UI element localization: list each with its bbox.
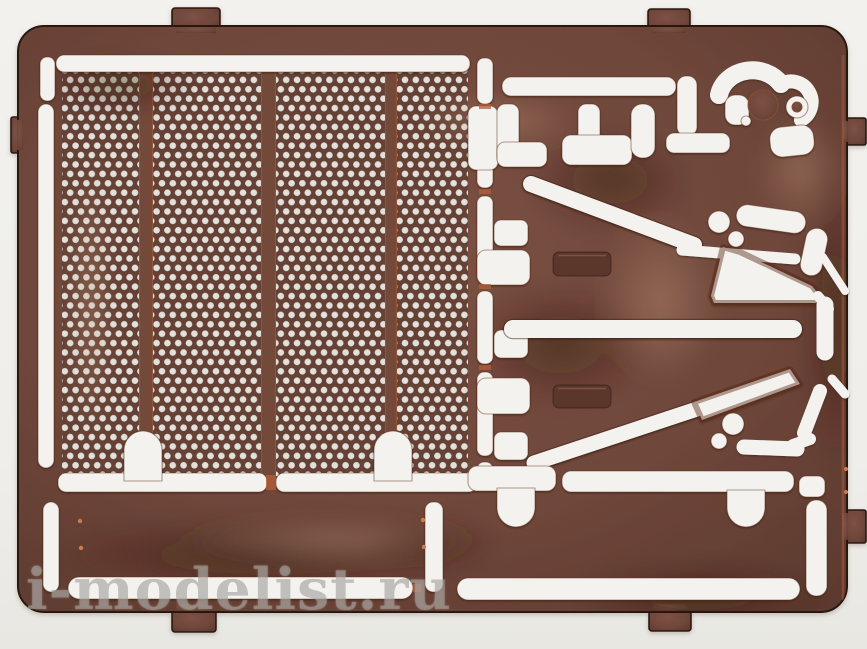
photo-etched-copper-fret	[0, 0, 867, 649]
mesh-left-slot	[40, 57, 55, 101]
copper-crescent	[748, 90, 778, 120]
right-edge-tab	[845, 510, 866, 543]
scanned-photo-of-photoetch-fret: i-modelist.ru	[0, 0, 867, 649]
bottom-long-slot	[457, 578, 800, 600]
mesh-left-slot	[38, 104, 54, 468]
keyhole-arch-cutout	[374, 431, 412, 481]
rivet-hole-core	[792, 102, 802, 112]
strip-part-cutout	[677, 76, 697, 136]
strip-part-cutout	[502, 77, 676, 96]
strip-part-cutout	[666, 133, 730, 153]
mesh-top-slot	[56, 55, 470, 72]
right-edge-tab	[845, 118, 866, 145]
lower-left-slot	[43, 502, 59, 592]
keyhole-arch-cutout	[124, 431, 162, 481]
bottom-long-slot	[68, 577, 413, 599]
